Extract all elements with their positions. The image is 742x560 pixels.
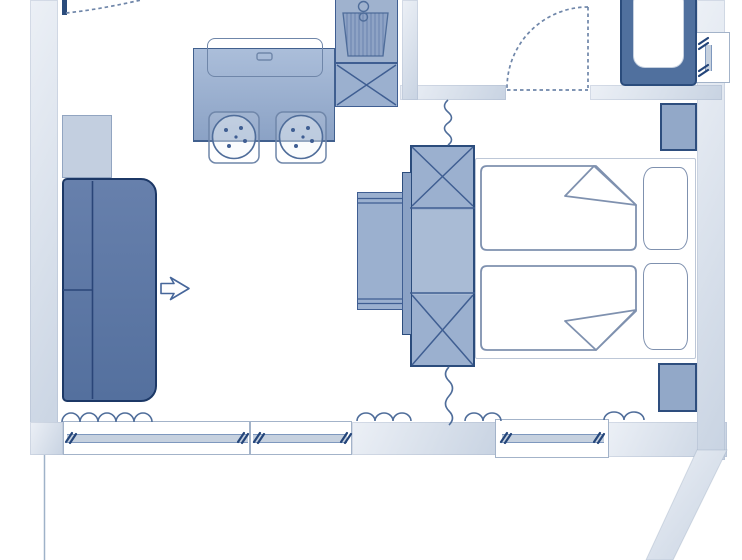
window-glazing-bar	[705, 45, 712, 71]
wall-niche-bottom	[658, 363, 697, 412]
wardrobe	[410, 145, 475, 367]
kitchen-bathroom-divider-wall	[402, 0, 418, 100]
window-glazing-bar	[502, 434, 604, 443]
entry-door-jamb	[62, 0, 67, 15]
bathtub	[620, 0, 697, 86]
window-band-right	[495, 419, 609, 458]
kitchen-sink-unit	[335, 0, 398, 63]
sofa-extension-arrow	[161, 278, 189, 300]
window-band-left	[63, 421, 352, 455]
floor-plan	[0, 0, 742, 560]
window-mullion	[249, 422, 251, 454]
wall-niche-top	[660, 103, 697, 151]
entry-door-swing	[66, 0, 141, 13]
pillow-bottom	[643, 263, 688, 350]
bottom-wall-middle	[352, 422, 497, 455]
left-wall	[30, 0, 58, 455]
kitchen-upper-cabinet-outline	[207, 38, 323, 77]
side-table	[62, 115, 112, 178]
desk	[357, 192, 403, 310]
pillow-top	[643, 167, 688, 250]
wardrobe-middle-section	[412, 210, 473, 295]
bathroom-door-swing	[507, 7, 588, 90]
bottom-wall-left-corner	[30, 422, 63, 455]
privacy-curtain-squiggle-bottom	[446, 367, 453, 425]
desk-side-panel	[402, 172, 412, 335]
bathtub-basin	[633, 0, 684, 68]
window-glazing-bar	[253, 434, 347, 443]
window-glazing-bar	[67, 434, 248, 443]
sofa	[62, 178, 157, 402]
diagonal-wall	[646, 450, 727, 560]
privacy-curtain-squiggle-top	[445, 100, 452, 145]
bathroom-window	[694, 32, 730, 83]
bathroom-wall-right-of-door	[590, 85, 722, 100]
sink-base-cabinet	[335, 63, 398, 107]
